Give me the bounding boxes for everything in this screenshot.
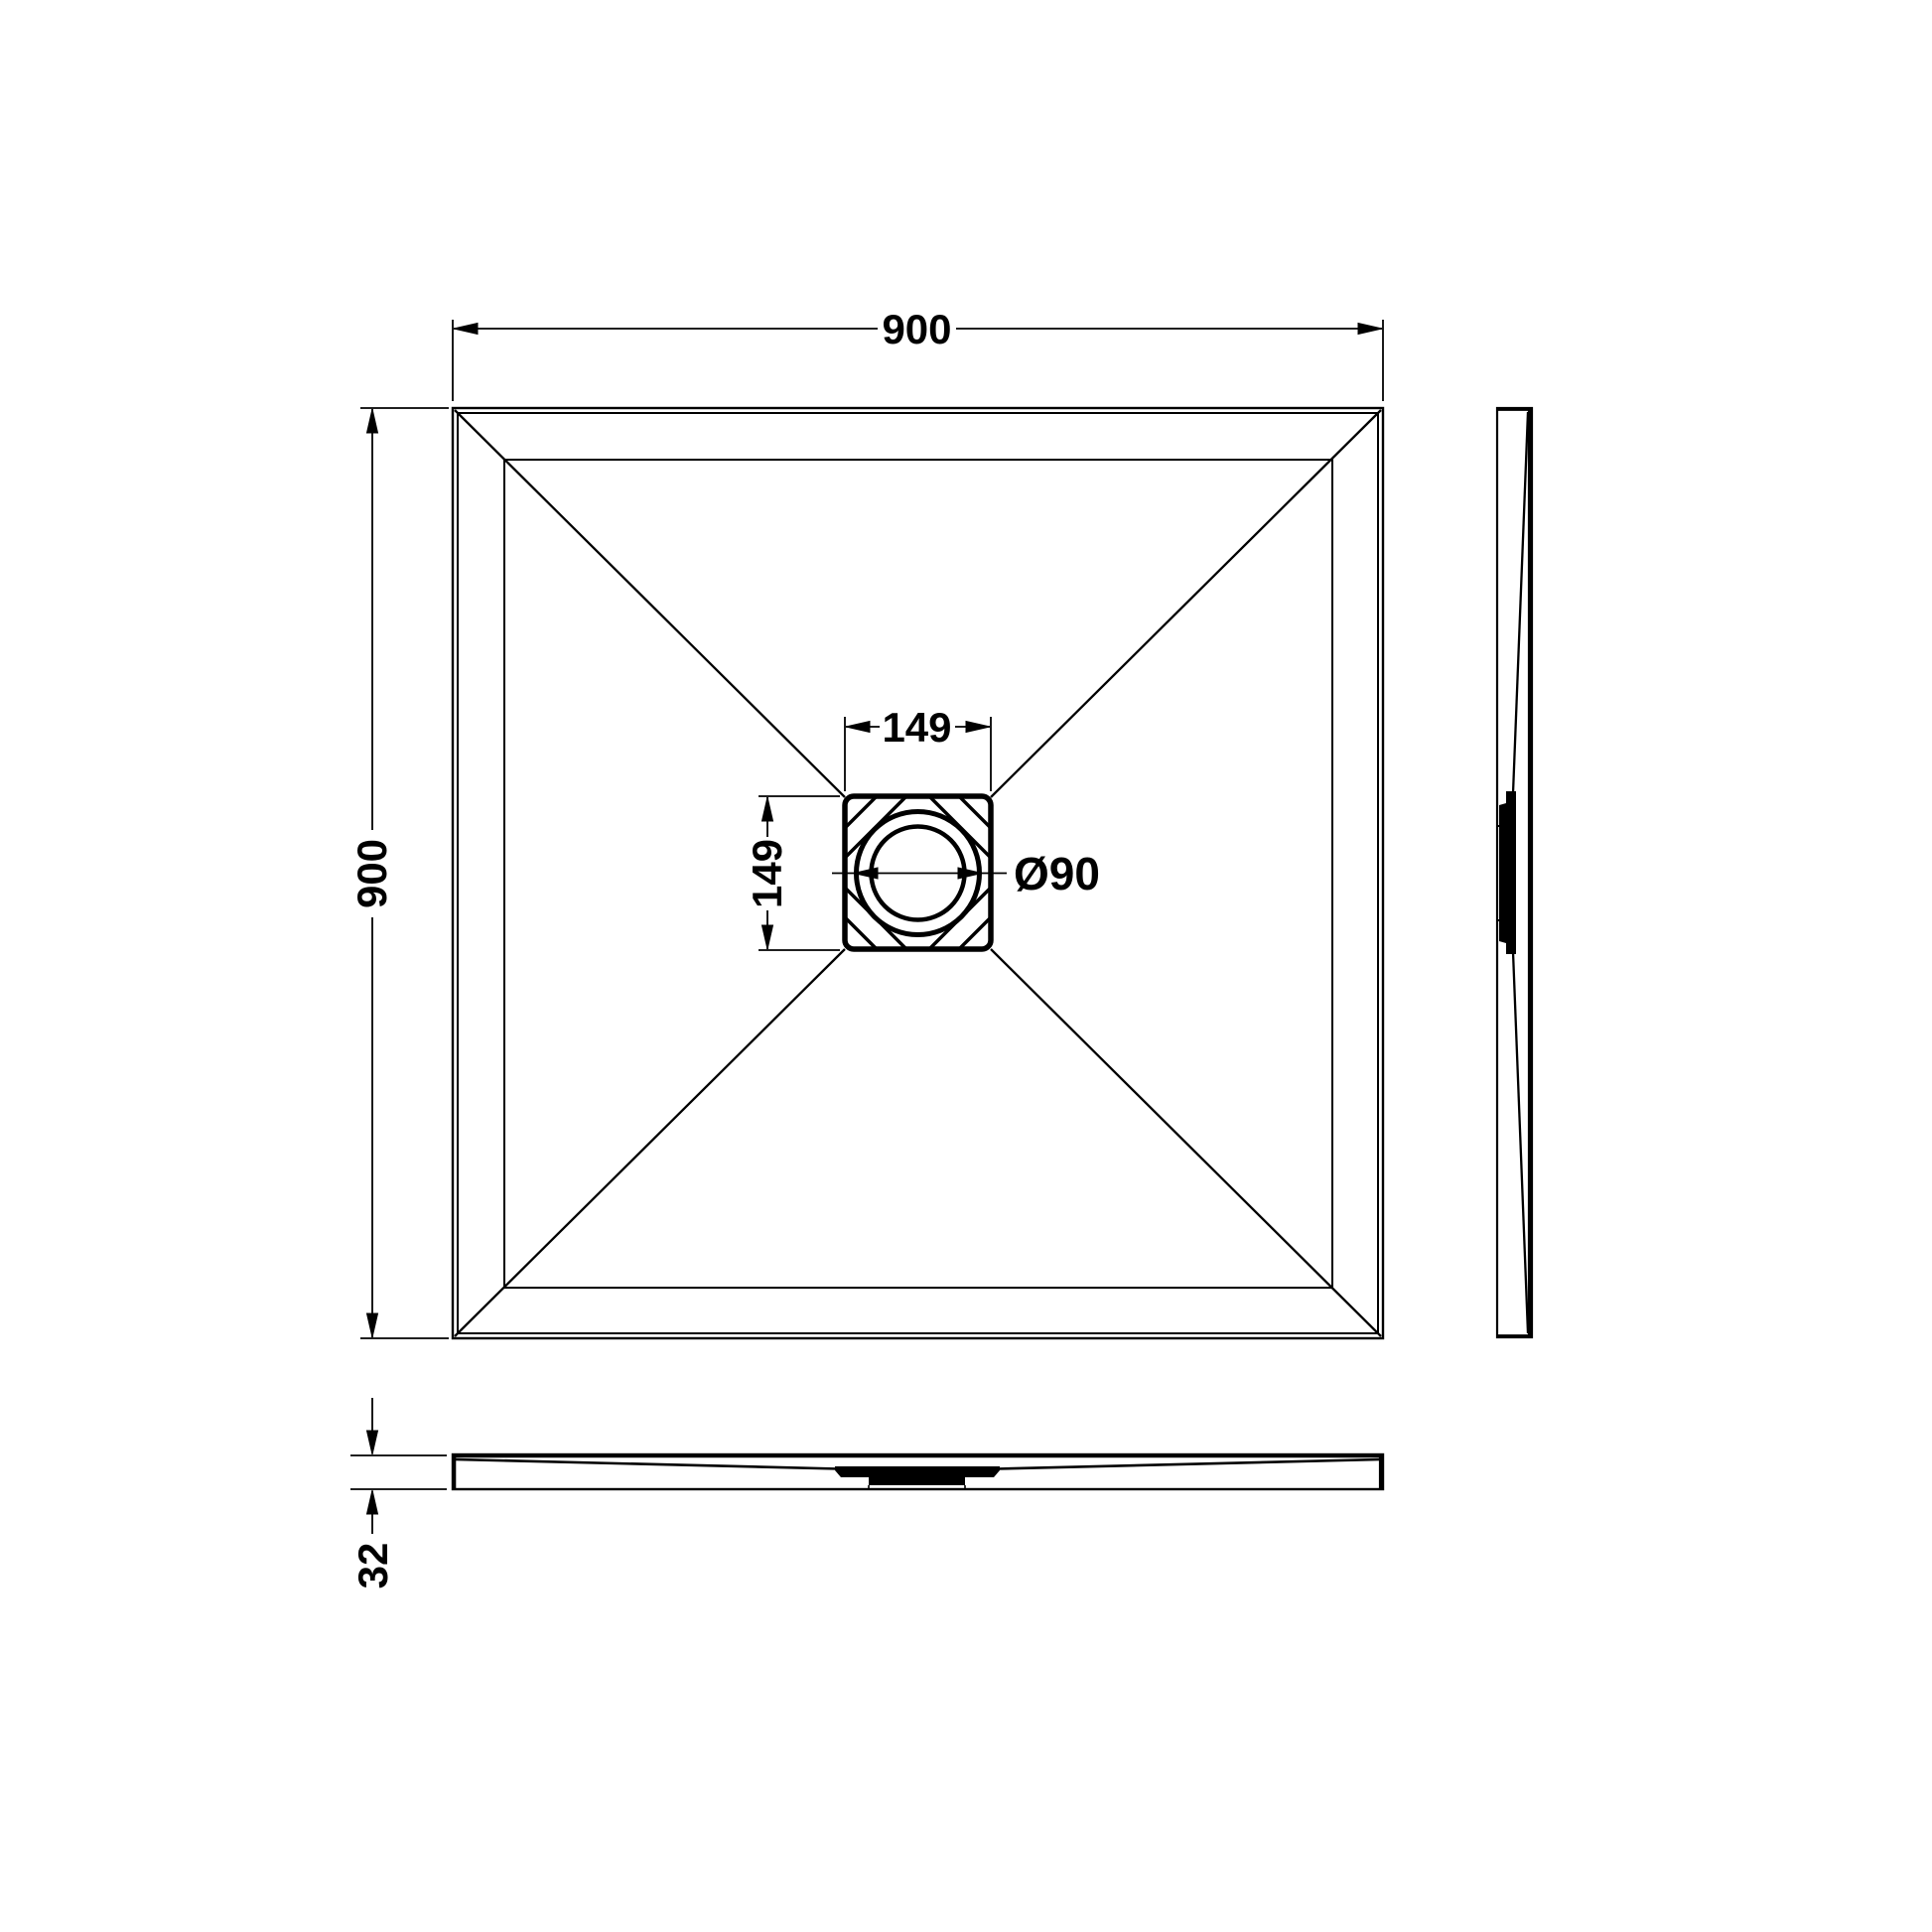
dim-label-tray-thickness: 32 <box>349 1543 396 1589</box>
dim-label-overall-depth: 900 <box>348 839 395 908</box>
arrow-up-icon <box>762 797 773 821</box>
dim-label-waste-depth: 149 <box>744 839 790 908</box>
arrow-right-icon <box>966 722 990 733</box>
front-slope-left <box>455 1459 839 1469</box>
front-view <box>453 1454 1383 1489</box>
arrow-down-icon <box>762 925 773 949</box>
side-drain-recess <box>1499 791 1516 954</box>
dim-tray-thickness: 32 <box>349 1398 447 1588</box>
arrow-down-icon <box>367 1431 378 1454</box>
side-slope-upper <box>1513 412 1528 793</box>
arrow-down-icon <box>367 1313 378 1337</box>
dim-waste-diameter: Ø90 <box>832 848 1100 899</box>
side-view <box>1496 408 1532 1337</box>
arrow-up-icon <box>367 409 378 433</box>
technical-drawing: 900 900 149 149 Ø90 <box>0 0 1932 1932</box>
front-slope-right <box>997 1459 1381 1469</box>
dim-overall-width: 900 <box>453 306 1383 401</box>
dim-label-overall-width: 900 <box>882 306 951 352</box>
dim-waste-width: 149 <box>845 704 991 791</box>
side-slope-lower <box>1513 952 1528 1333</box>
dim-overall-depth: 900 <box>348 408 449 1338</box>
front-drain-recess <box>835 1466 1000 1485</box>
arrow-right-icon <box>1358 324 1382 335</box>
dim-label-waste-diameter: Ø90 <box>1014 848 1100 899</box>
dim-waste-depth: 149 <box>744 796 840 950</box>
arrow-left-icon <box>846 722 870 733</box>
dim-label-waste-width: 149 <box>882 704 951 751</box>
arrow-up-icon <box>367 1490 378 1514</box>
arrow-left-icon <box>454 324 478 335</box>
drawing-canvas: 900 900 149 149 Ø90 <box>0 0 1932 1932</box>
